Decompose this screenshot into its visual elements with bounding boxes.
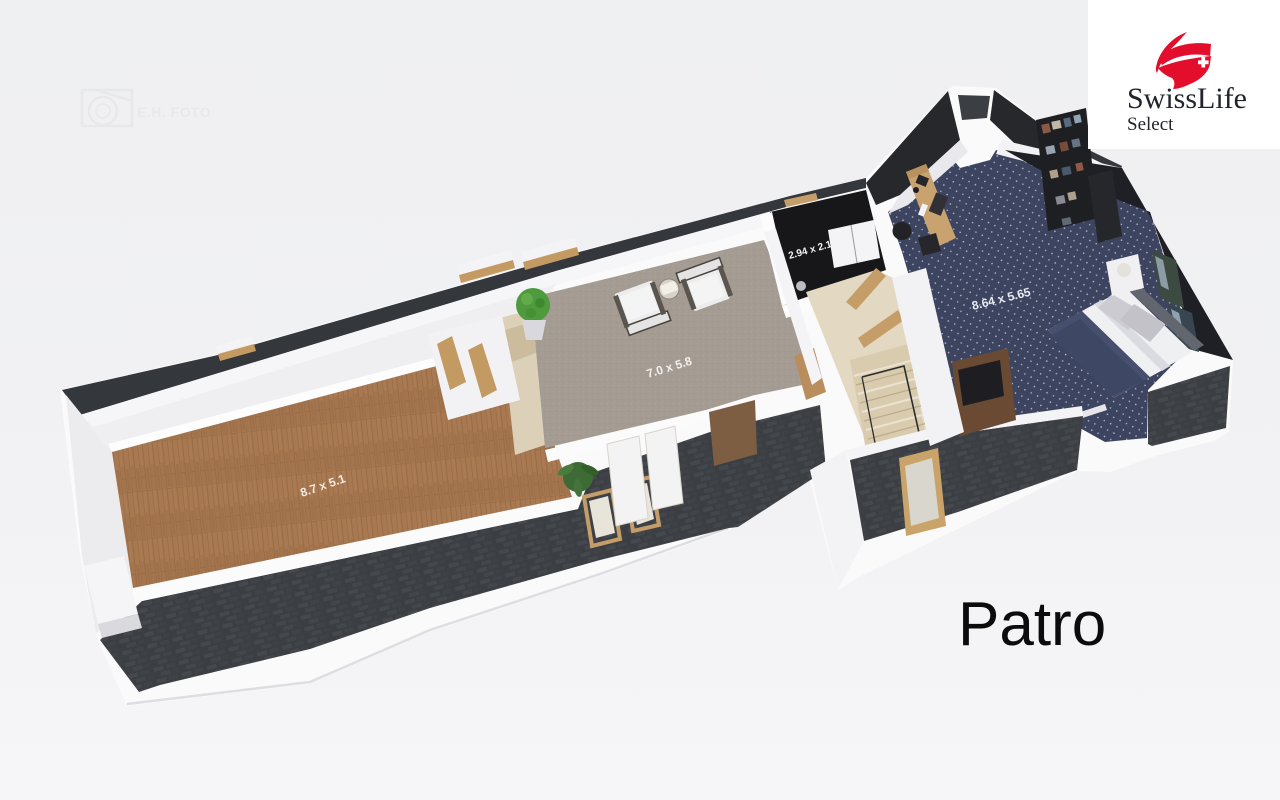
svg-text:Patro: Patro (958, 590, 1106, 659)
svg-text:SwissLife: SwissLife (1127, 82, 1247, 115)
svg-text:Select: Select (1127, 114, 1174, 135)
svg-text:E.H. FOTO: E.H. FOTO (137, 104, 211, 120)
